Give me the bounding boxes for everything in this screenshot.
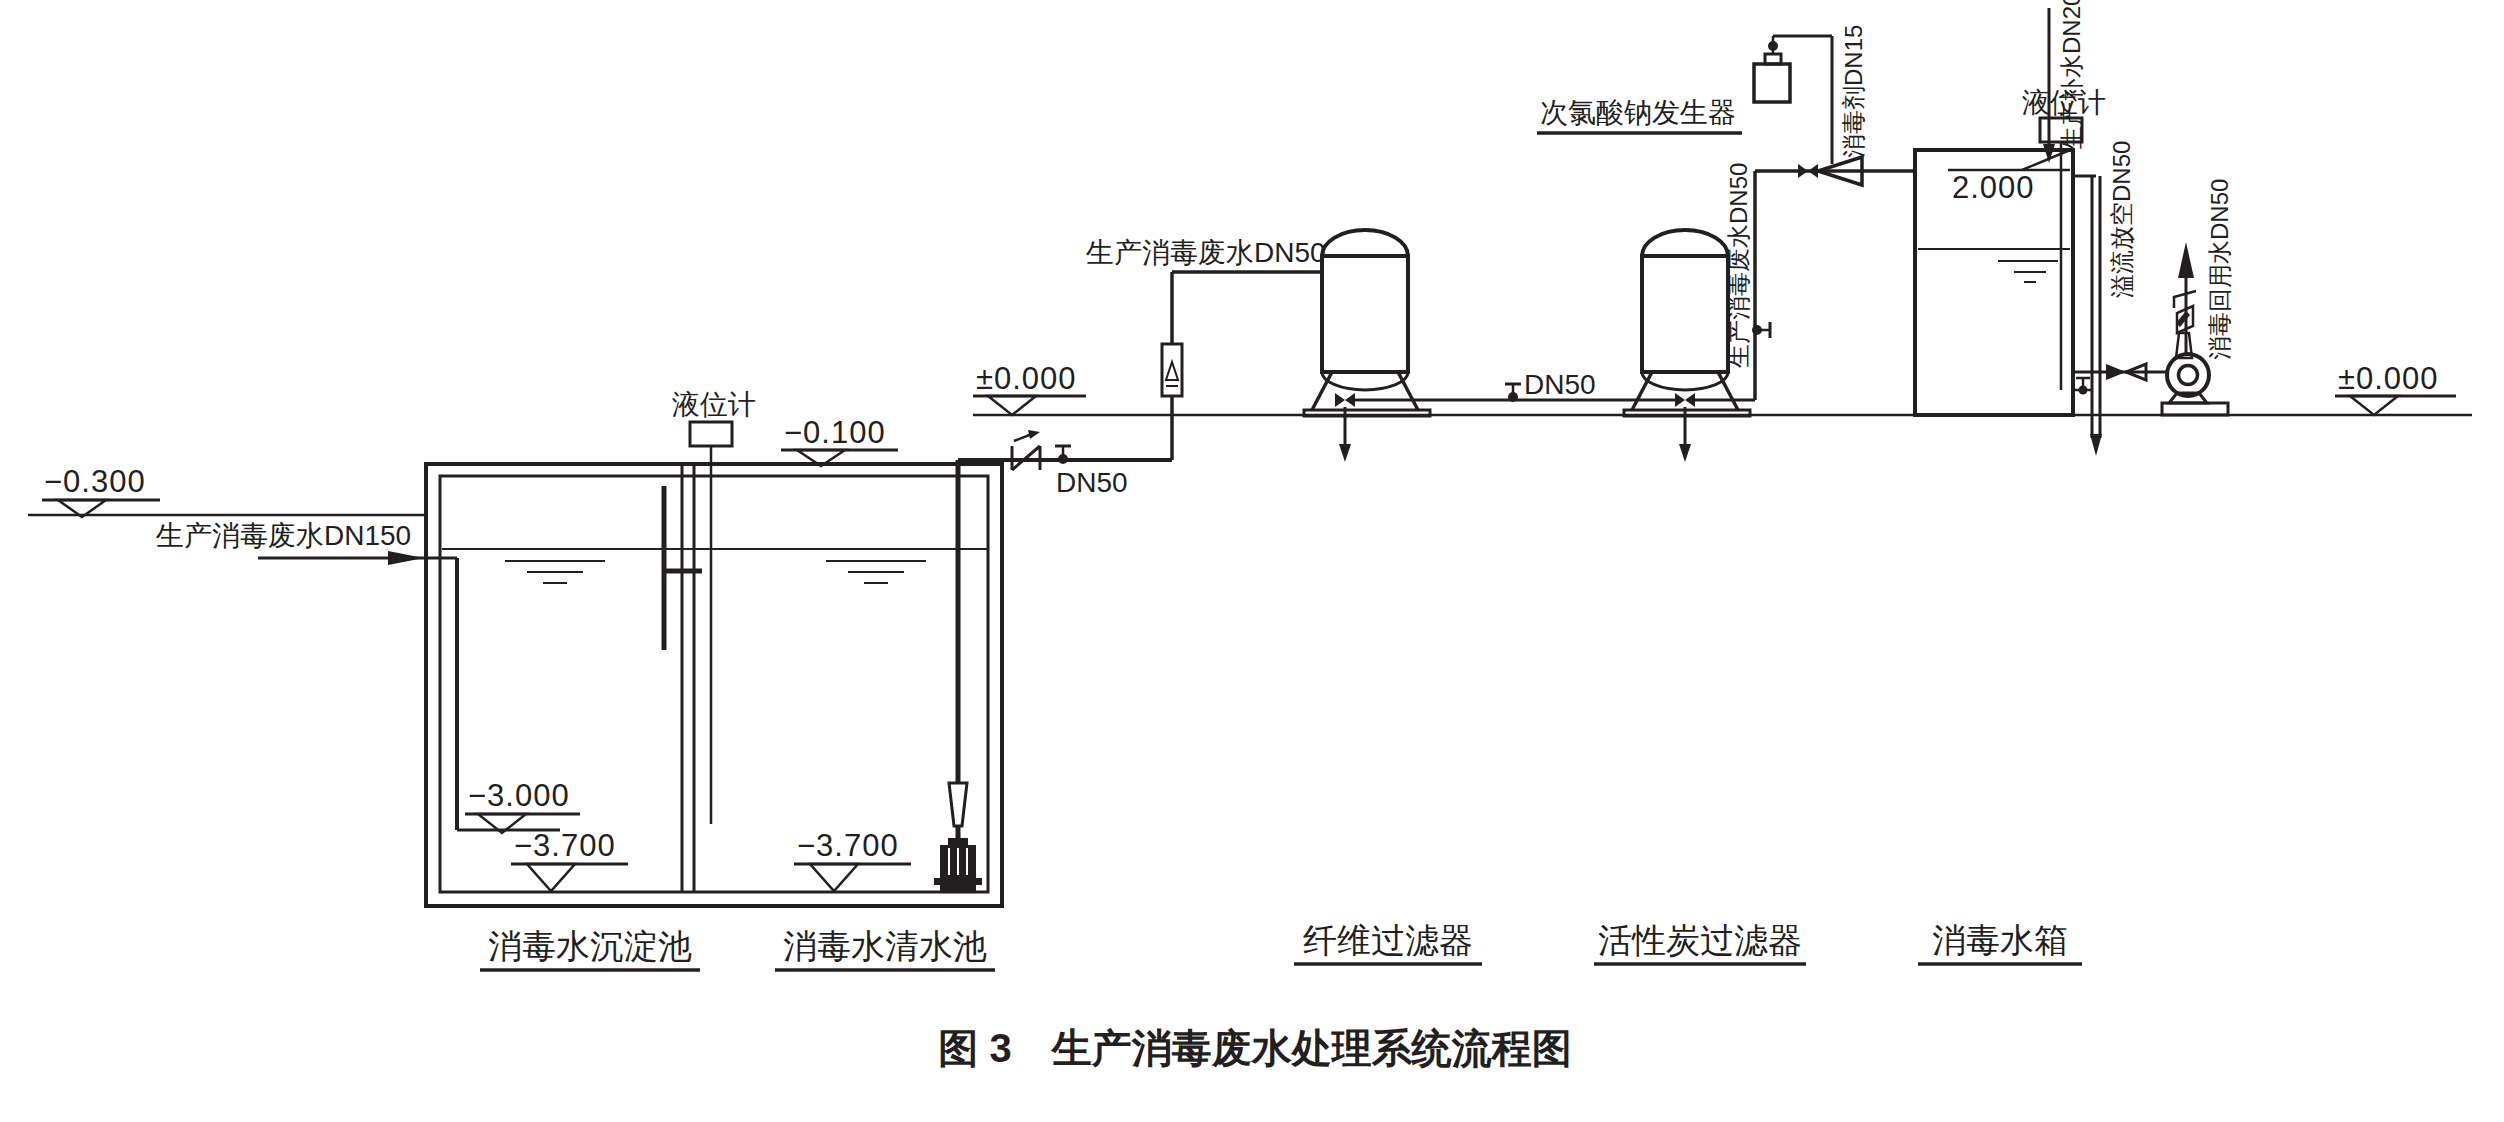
riser-pipe-to-fiber-filter <box>1162 272 1324 460</box>
equipment-label-carbon-filter: 活性炭过滤器 <box>1594 921 1806 964</box>
elevation-triangle-icon <box>810 864 858 891</box>
generator-valve-icon <box>1768 36 1778 54</box>
generator-box-icon <box>1754 64 1790 102</box>
svg-text:消毒水沉淀池: 消毒水沉淀池 <box>488 927 692 965</box>
water-surface-icon <box>1998 261 2058 282</box>
elevation-marker-clear-tank-top: −0.100 <box>781 415 898 466</box>
generator-label: 次氯酸钠发生器 <box>1540 97 1736 128</box>
equipment-label-sedimentation: 消毒水沉淀池 <box>480 927 700 970</box>
hypochlorite-generator: 次氯酸钠发生器 <box>1537 36 1832 164</box>
elevation-triangle-icon <box>527 864 575 891</box>
drain-arrow-icon <box>1679 444 1691 462</box>
elevation-marker-left-ground: −0.300 <box>42 464 160 517</box>
svg-text:活性炭过滤器: 活性炭过滤器 <box>1598 921 1802 959</box>
svg-text:−3.700: −3.700 <box>514 828 616 863</box>
disinfectant-pipe-label: 消毒剂DN15 <box>1840 25 1867 158</box>
level-gauge-label: 液位计 <box>672 389 756 420</box>
tank-drain-valve-icon <box>2073 378 2092 395</box>
equipment-label-disinfection-tank: 消毒水箱 <box>1918 921 2082 964</box>
elevation-triangle-icon <box>988 396 1036 415</box>
svg-text:2.000: 2.000 <box>1952 170 2035 205</box>
elevation-marker-sedimentation-bottom: −3.700 <box>511 828 628 891</box>
elevation-marker-platform: ±0.000 <box>973 361 1086 415</box>
flow-diagram-canvas: −0.300 生产消毒废水DN150 −3 <box>0 0 2504 1122</box>
fiber-filter-vessel <box>1304 230 1430 462</box>
overflow-label: 溢流放空DN50 <box>2108 141 2135 298</box>
dosing-pipe <box>1755 157 1915 185</box>
drain-valve-icon <box>1675 393 1695 407</box>
equipment-label-clear-water: 消毒水清水池 <box>775 927 995 970</box>
drain-arrow-icon <box>1339 444 1351 462</box>
svg-text:消毒水清水池: 消毒水清水池 <box>783 927 987 965</box>
foot-strainer-icon <box>949 783 967 826</box>
elevation-marker-right-ground: ±0.000 <box>2335 361 2456 415</box>
check-valve-1-icon <box>1012 430 1040 470</box>
figure-title: 图 3 生产消毒废水处理系统流程图 <box>938 1026 1571 1070</box>
drain-arrow-icon <box>2090 434 2102 456</box>
pump-discharge-pipe <box>2174 242 2196 358</box>
elevation-marker-clear-bottom: −3.700 <box>794 828 911 891</box>
reuse-pump-icon <box>2162 354 2228 415</box>
flow-meter-icon <box>1162 344 1182 396</box>
sedimentation-clear-tank <box>426 464 1002 906</box>
svg-text:−3.700: −3.700 <box>797 828 899 863</box>
level-gauge-left: 液位计 <box>672 389 756 824</box>
elevation-marker-tank-top: 2.000 <box>1948 150 2070 205</box>
water-surface-right-icon <box>826 561 926 583</box>
svg-text:消毒水箱: 消毒水箱 <box>1932 921 2068 959</box>
svg-text:纤维过滤器: 纤维过滤器 <box>1303 921 1473 959</box>
flow-arrow-icon <box>2178 242 2194 278</box>
elevation-text: −0.300 <box>44 464 146 499</box>
pipe-label-to-fiber: 生产消毒废水DN50 <box>1085 237 1326 268</box>
flow-arrow-icon <box>388 551 424 565</box>
process-flow-diagram: −0.300 生产消毒废水DN150 −3 <box>0 0 2504 1122</box>
dn50-label-1: DN50 <box>1056 467 1128 498</box>
water-surface-left-icon <box>505 561 605 583</box>
svg-text:−3.000: −3.000 <box>468 778 570 813</box>
elevation-marker-inlet-bottom: −3.000 <box>465 778 580 833</box>
pipe-label-to-tank: 生产消毒废水DN50 <box>1725 163 1752 368</box>
svg-text:±0.000: ±0.000 <box>976 361 1077 396</box>
equipment-label-fiber-filter: 纤维过滤器 <box>1294 921 1482 964</box>
svg-text:−0.100: −0.100 <box>784 415 886 450</box>
svg-text:±0.000: ±0.000 <box>2338 361 2439 396</box>
level-gauge-box-icon <box>690 422 732 446</box>
submersible-pump-assembly <box>934 460 1172 892</box>
dn50-label-2: DN50 <box>1524 369 1596 400</box>
reuse-water-label: 消毒回用水DN50 <box>2206 179 2233 360</box>
makeup-water-label: 生产补水DN20 <box>2058 0 2085 150</box>
makeup-water-pipe <box>2043 8 2055 163</box>
drain-valve-icon <box>1335 393 1355 407</box>
elevation-triangle-icon <box>2350 396 2398 415</box>
inlet-pipe-label: 生产消毒废水DN150 <box>155 520 411 551</box>
disinfection-tank: 2.000 <box>1915 150 2073 415</box>
